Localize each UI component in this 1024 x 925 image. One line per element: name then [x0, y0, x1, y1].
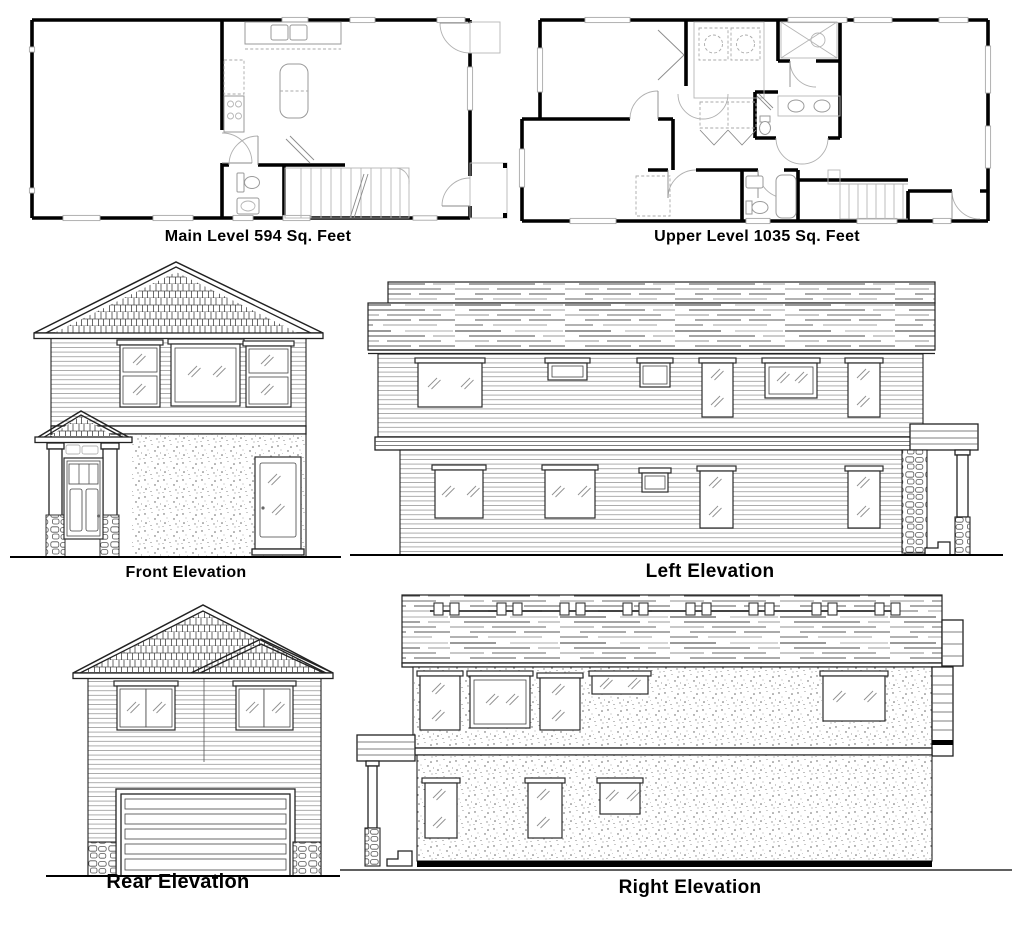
porch-steps	[387, 851, 412, 866]
hall-bath	[746, 175, 796, 218]
house-plan-sheet: Main Level 594 Sq. Feet	[0, 0, 1024, 925]
main-level-label: Main Level 594 Sq. Feet	[165, 228, 352, 246]
corner-trim-strip	[932, 667, 953, 756]
foundation-line	[417, 861, 932, 867]
roof-return-box	[942, 620, 963, 666]
left-elevation	[345, 276, 1005, 560]
laundry	[694, 22, 764, 98]
bedroom-closet-bifold	[658, 30, 684, 80]
stairs	[828, 170, 908, 219]
roof	[368, 282, 935, 354]
stone-column	[902, 450, 927, 553]
roof	[402, 595, 963, 667]
main-level-floor-plan	[18, 8, 518, 228]
front-elevation	[10, 256, 346, 562]
porch-post	[955, 450, 970, 555]
entry-landing	[470, 22, 507, 218]
plan-windows	[29, 17, 472, 220]
rear-elevation	[28, 590, 358, 890]
porch-roof	[910, 424, 978, 450]
gable-roofs	[73, 605, 333, 679]
left-elevation-label: Left Elevation	[646, 561, 775, 583]
upper-window-right	[233, 681, 296, 730]
master-bath	[757, 22, 840, 135]
upper-level-floor-plan	[518, 8, 996, 228]
upper-window-center	[168, 339, 244, 406]
right-elevation-label: Right Elevation	[619, 877, 762, 899]
front-elevation-label: Front Elevation	[126, 564, 247, 582]
floor-band	[413, 748, 932, 755]
floor-band	[375, 437, 920, 450]
plan-walls	[522, 20, 988, 221]
linen-closet	[700, 102, 756, 145]
plan-doors	[222, 23, 470, 206]
front-door	[64, 458, 103, 539]
main-gable-roof	[34, 262, 323, 339]
side-entry-door	[252, 457, 304, 555]
garage-door	[116, 789, 295, 876]
porch-steps	[925, 542, 950, 555]
porch	[357, 735, 415, 866]
upper-window-left	[114, 681, 178, 730]
powder-room	[237, 173, 260, 214]
right-elevation	[340, 588, 1024, 888]
plan-doors	[630, 91, 980, 219]
upper-window-left	[117, 340, 163, 407]
rear-elevation-label: Rear Elevation	[106, 871, 249, 894]
upper-level-label: Upper Level 1035 Sq. Feet	[654, 228, 860, 246]
bedroom2-closet	[636, 176, 670, 216]
upper-window-right	[243, 341, 294, 407]
stairs	[285, 168, 409, 218]
lower-wall-stucco	[417, 755, 932, 861]
kitchen	[224, 22, 341, 132]
